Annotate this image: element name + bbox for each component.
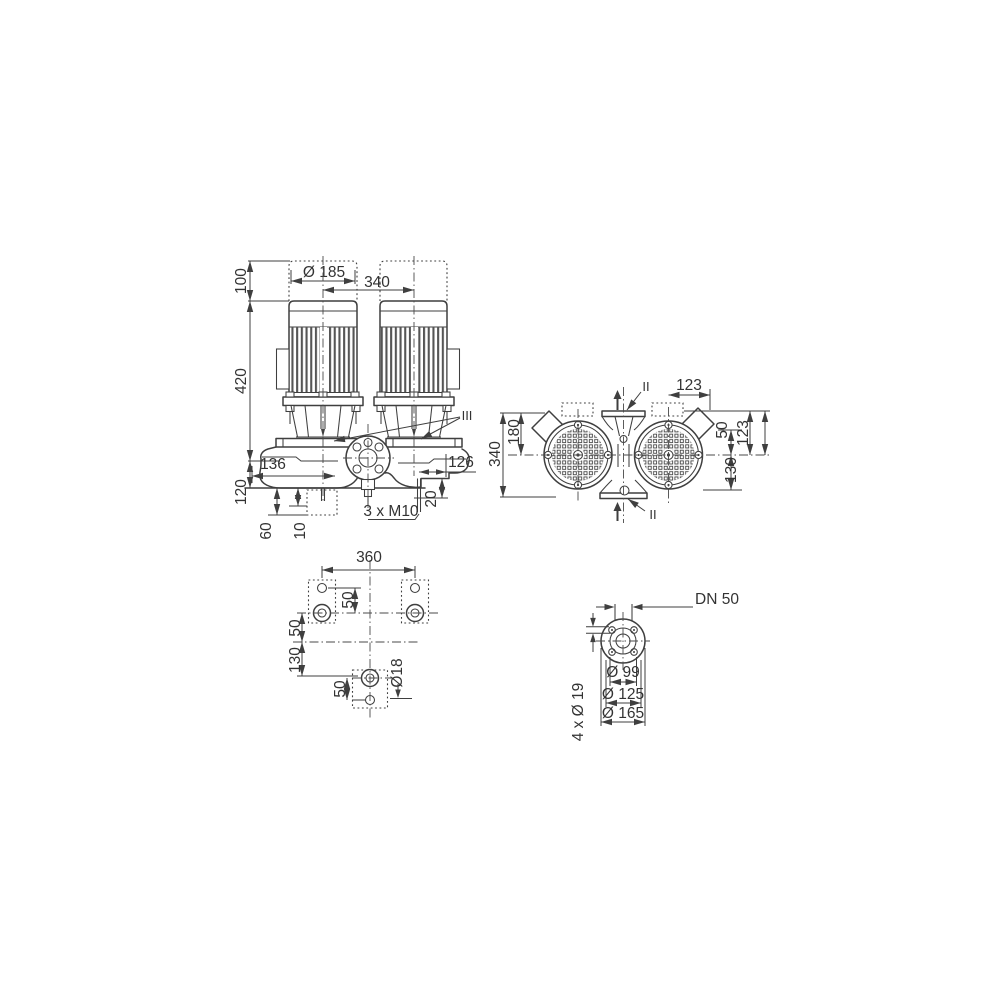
dim-motor-spacing-label: 340 [364,274,390,291]
dim-hole-diameter-label: Ø18 [389,658,406,687]
dim-box-to-center-label: 123 [735,420,752,446]
dim-stud-thread-label: 3 x M10 [363,503,419,520]
foot-plan-view: 360 50 50 130 50 Ø18 [287,549,440,718]
dim-box-offset-label: 50 [714,421,731,439]
dim-outer-diameter-label: Ø 165 [602,705,644,722]
dim-nominal-diameter-label: DN 50 [695,591,739,608]
flow-arrow-top [614,390,622,410]
foot-hole-upper-right-small [411,584,420,593]
dim-bolt-holes-label: 4 x Ø 19 [570,683,587,742]
front-elevation-view: 100 420 120 Ø 185 340 136 126 20 60 10 3… [233,256,476,540]
flow-arrow-bottom [614,502,622,521]
section-label-two-bottom: II [649,507,656,522]
dim-center-to-right-label: 126 [448,454,474,471]
dim-motor-diameter-label: Ø 185 [303,264,345,281]
section-label-three: III [462,408,473,423]
dim-motor-height-label: 420 [233,368,250,394]
pump-casing-ring-right [386,439,462,448]
dim-center-to-front-label: 130 [723,457,740,483]
dim-bolt-spacing-label: 360 [356,549,382,566]
motor-outline-hidden-left [562,403,593,416]
dim-upper-hole-offset-label: 50 [340,591,357,609]
motor-outline-hidden-right [652,403,683,416]
dim-lower-offset-label: 130 [287,647,304,673]
dim-pad-depth-label: 10 [292,522,309,540]
motor-clearance-outline-right [380,261,447,301]
dim-base-height-label: 120 [233,479,250,505]
terminal-box-left [277,349,290,389]
dim-center-to-edge-top-label: 123 [676,377,702,394]
dim-left-to-center-label: 136 [260,456,286,473]
dim-stud-length-label: 20 [423,490,440,508]
terminal-box-right [447,349,460,389]
dim-bolt-circle-label: Ø 125 [602,686,644,703]
dim-overall-depth-label: 340 [487,441,504,467]
section-label-two-top: II [642,379,649,394]
pump-dimension-drawing: 100 420 120 Ø 185 340 136 126 20 60 10 3… [0,0,1000,1000]
foot-hole-upper-left-small [318,584,327,593]
dim-center-offset-label: 50 [287,619,304,637]
dim-foot-depth-label: 60 [258,522,275,540]
drawing-svg: 100 420 120 Ø 185 340 136 126 20 60 10 3… [0,0,1000,1000]
top-view: II II 340 180 123 50 130 123 [487,377,770,523]
dim-rear-to-center-label: 180 [506,419,523,445]
flange-detail-view: DN 50 Ø 99 Ø 125 Ø 165 4 x Ø 19 [570,591,739,741]
dim-top-clearance-label: 100 [233,268,250,294]
dim-lower-hole-offset-label: 50 [332,680,349,698]
